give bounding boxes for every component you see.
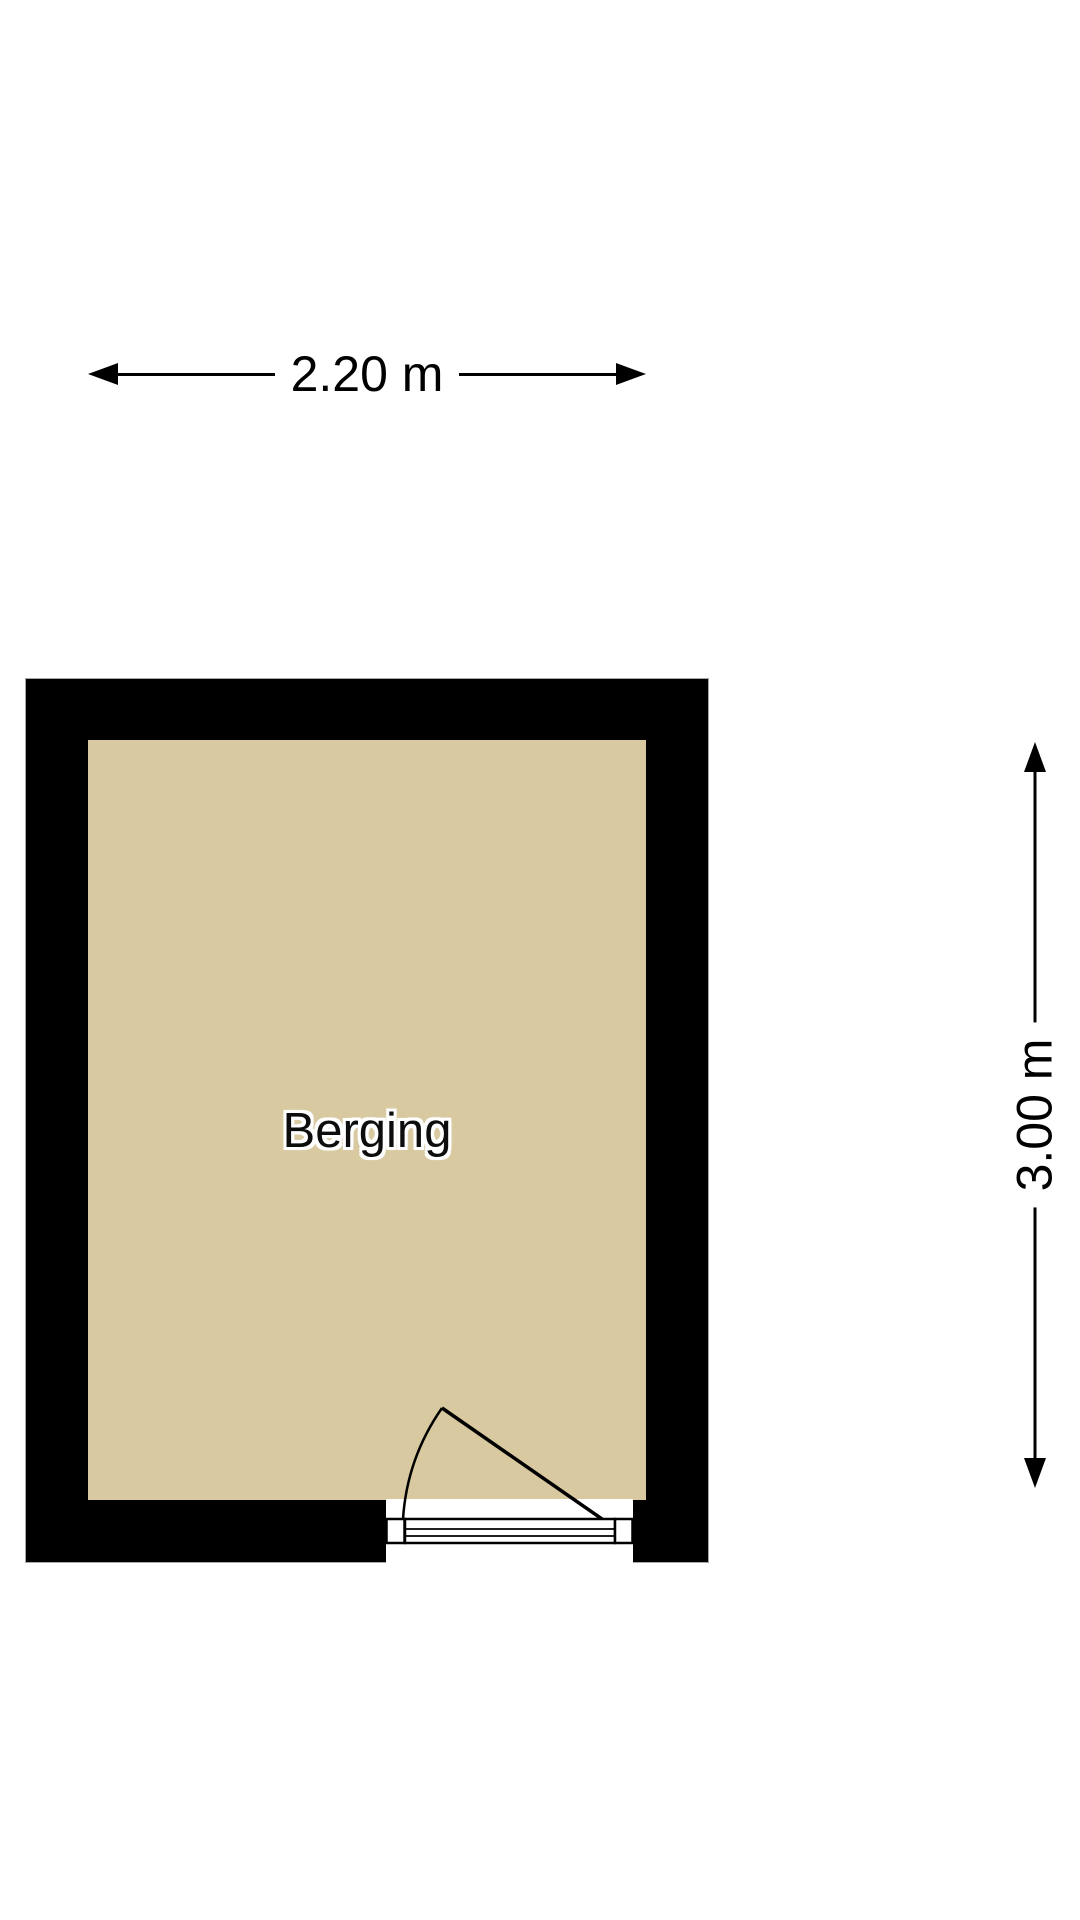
height-dimension-label: 3.00 m: [1008, 1023, 1063, 1208]
room-walls: Berging: [25, 678, 709, 1563]
dimension-line-segment: [116, 373, 275, 376]
room-label: Berging: [283, 1103, 452, 1159]
height-dimension: 3.00 m: [1024, 742, 1046, 1488]
room-floor: Berging: [88, 740, 646, 1500]
width-dimension: 2.20 m: [88, 344, 646, 404]
arrow-down-icon: [1024, 1458, 1046, 1488]
floorplan-canvas: 2.20 m Berging 3.00 m: [0, 0, 1080, 1920]
dimension-line-segment: [459, 373, 618, 376]
arrow-left-icon: [88, 363, 118, 385]
arrow-right-icon: [616, 363, 646, 385]
width-dimension-label: 2.20 m: [275, 347, 460, 402]
